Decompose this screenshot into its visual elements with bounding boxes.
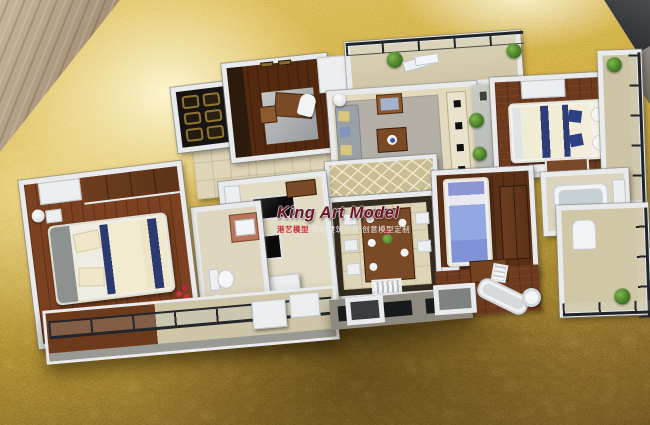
navy-pillow-1 [568,110,582,123]
study-plaque-1 [260,61,273,67]
balcony-plant-right [506,43,522,59]
master-closet [521,79,566,99]
nightstand-lamp [31,209,45,223]
armchair-top [376,93,403,115]
dining-chair-l3 [346,263,361,276]
navy-pillow-2 [569,133,584,147]
scale-model-photo: King Art Model 港艺模型 高端建筑沙盘 创意模型定制 [0,0,650,425]
watermark: King Art Model 港艺模型 高端建筑沙盘 创意模型定制 [277,204,427,235]
pillow-2 [78,267,104,286]
ledge-opening-1 [345,294,385,325]
washer-box-1 [251,299,287,330]
study-wall-dark [227,67,252,158]
wall-plant-1 [469,113,485,129]
flower-centerpiece [382,233,393,244]
balcony-plant-left [386,51,403,68]
watermark-subtitle-tagline: 高端建筑沙盘 创意模型定制 [312,225,411,234]
sofa-pillow-yellow-2 [341,145,352,155]
bed-left [47,212,176,306]
watermark-title: King Art Model [277,204,427,223]
watermark-subtitle: 港艺模型 高端建筑沙盘 创意模型定制 [277,224,427,235]
ledge-opening-2 [433,283,477,316]
nightstand [45,209,62,224]
wall-art-1 [478,90,488,101]
pillow-1 [72,229,101,253]
study-chair-wood [259,105,278,124]
bottom-right-balcony [556,202,650,317]
balcony-papers-2 [414,53,439,66]
wall-plant-2 [472,146,487,161]
sofa-pillow-blue [339,126,352,138]
round-basin [522,288,541,307]
duvet [99,217,171,294]
wardrobe-2 [499,185,531,260]
coffee-table [376,127,408,153]
wardrobe-left [81,166,180,204]
lounge-chair [572,219,597,250]
washer-box-2 [289,292,321,319]
master-bed [508,99,611,164]
entry-door-panels [179,90,227,145]
watermark-subtitle-brand: 港艺模型 [277,225,309,234]
kitchen-shelf [285,179,317,198]
right-balcony-plant [607,57,623,73]
blue-bed [443,177,494,267]
dining-chair-r2 [417,240,432,253]
vanity [229,212,260,243]
br-balcony-rail-bottom [562,300,650,316]
dining-chair-l2 [343,239,358,252]
study-plaque-2 [278,59,291,65]
toilet [208,265,234,291]
right-balcony-railing [628,52,645,206]
vanity-desk [38,178,82,205]
sofa-pillow-yellow-1 [338,111,350,122]
